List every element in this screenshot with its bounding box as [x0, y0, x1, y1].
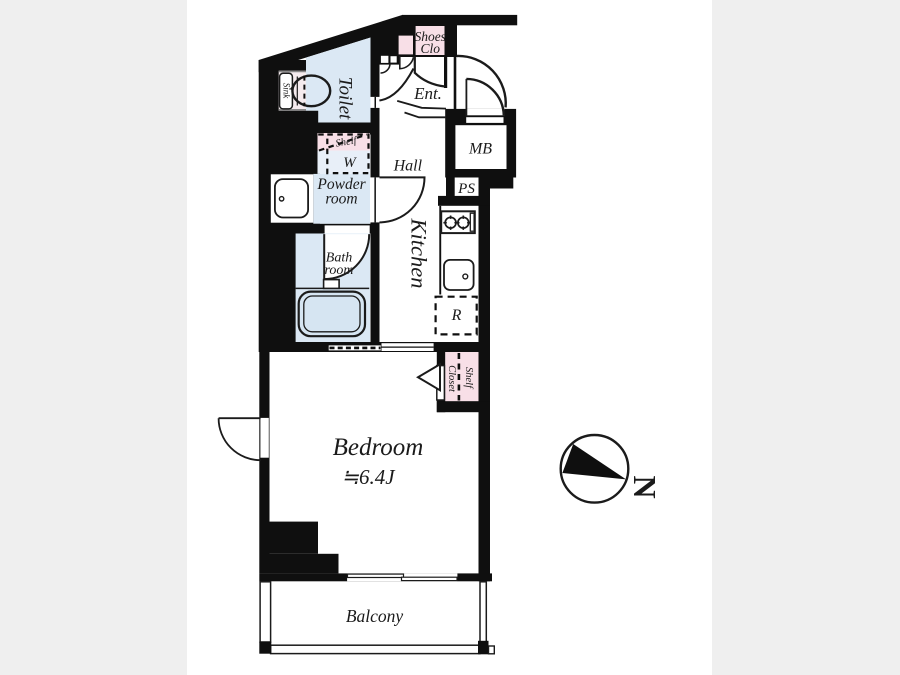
svg-text:PS: PS [457, 181, 475, 197]
svg-text:Balcony: Balcony [346, 606, 404, 626]
svg-text:Bedroom: Bedroom [333, 434, 424, 461]
svg-text:Kitchen: Kitchen [407, 218, 432, 289]
svg-text:MB: MB [468, 141, 492, 158]
svg-text:Sink: Sink [282, 83, 292, 100]
svg-text:Clo: Clo [420, 41, 440, 56]
svg-text:room: room [325, 191, 357, 208]
svg-text:N: N [627, 475, 663, 498]
svg-text:Toilet: Toilet [335, 77, 356, 120]
svg-text:W: W [343, 155, 357, 171]
svg-text:Shelf: Shelf [463, 367, 474, 390]
svg-text:room: room [324, 263, 353, 278]
svg-text:Hall: Hall [393, 158, 423, 175]
svg-text:Closet: Closet [446, 365, 457, 393]
svg-text:≒6.4J: ≒6.4J [341, 465, 396, 489]
svg-text:R: R [451, 307, 462, 324]
svg-text:Ent.: Ent. [413, 84, 442, 103]
